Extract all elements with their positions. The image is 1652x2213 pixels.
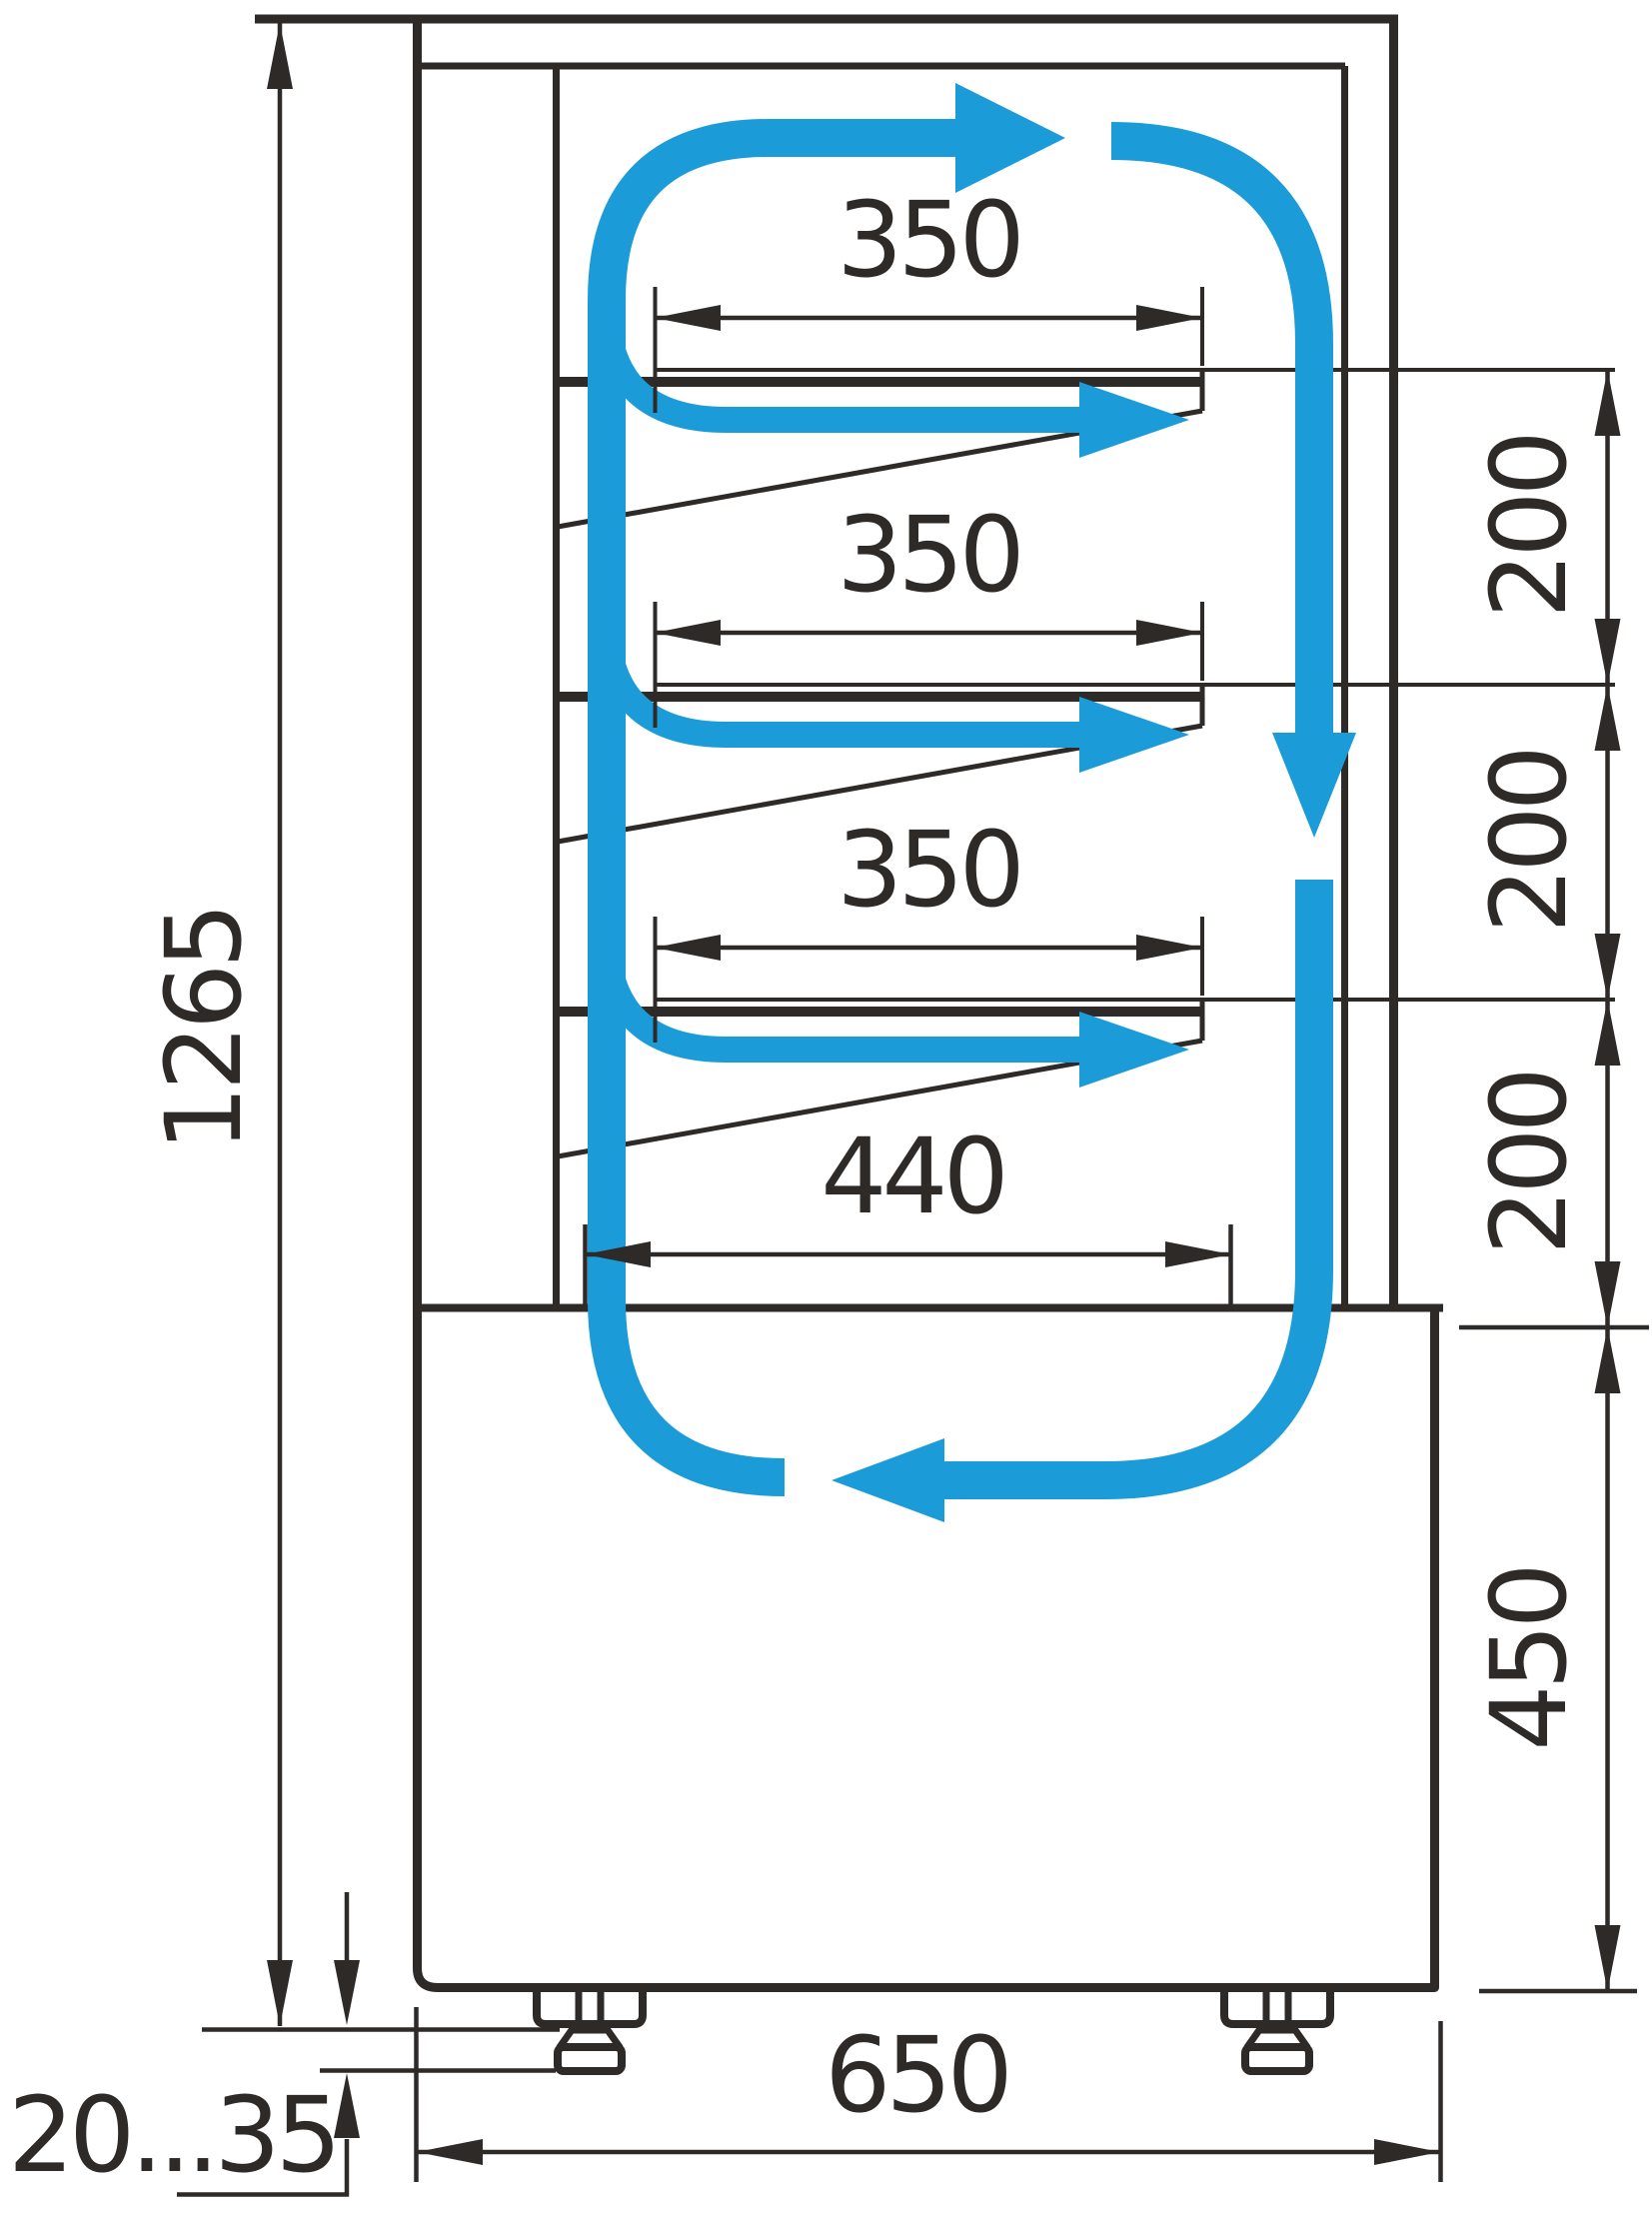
left-leg-foot-plate <box>558 2047 622 2071</box>
dim-shelf-2-width-label: 350 <box>836 494 1020 616</box>
dim-350-2-arrow-right-icon <box>1136 620 1202 646</box>
display-case-diagram: 1265 20...35 350 350 <box>0 0 1652 2213</box>
right-leg <box>1224 1992 1330 2071</box>
dim-overall-height-label: 1265 <box>143 908 265 1152</box>
dim-leg-adjust-label: 20...35 <box>8 2074 337 2196</box>
dim-350-1-arrow-left-icon <box>655 305 721 331</box>
chain-arrow-icon <box>1595 934 1621 1000</box>
left-leg-screw <box>579 1992 601 2024</box>
dim-well-height-label: 450 <box>1468 1567 1590 1751</box>
dim-350-1-arrow-right-icon <box>1136 305 1202 331</box>
chain-arrow-icon <box>1595 619 1621 685</box>
airflow-branch-2-arrow-icon <box>1079 697 1189 773</box>
dim-440-arrow-right-icon <box>1165 1241 1231 1267</box>
dim-shelf-3-width-label: 350 <box>836 809 1020 931</box>
airflow-branch-1-arrow-icon <box>1079 382 1189 458</box>
dim-1265-arrow-up-icon <box>267 23 293 89</box>
chain-arrow-icon <box>1595 1925 1621 1991</box>
dim-shelf-spacing-1-label: 200 <box>1468 435 1590 619</box>
chain-arrow-icon <box>1595 1327 1621 1393</box>
dim-1265-arrow-down-icon <box>267 1960 293 2026</box>
dim-350-2-arrow-left-icon <box>655 620 721 646</box>
right-leg-foot-plate <box>1245 2047 1309 2071</box>
dim-right-chain: 200 200 200 450 <box>1459 370 1649 1991</box>
airflow-branch-3-arrow-icon <box>1079 1012 1189 1088</box>
chain-arrow-icon <box>1595 1000 1621 1066</box>
airflow-left-arrow-icon <box>831 1438 944 1522</box>
dim-leg-arrow-up-icon <box>334 2073 360 2138</box>
dim-shelf-spacing-3-label: 200 <box>1468 1072 1590 1255</box>
cabinet-structure <box>255 19 1443 1988</box>
right-leg-bracket <box>1224 1992 1330 2024</box>
chain-arrow-icon <box>1595 370 1621 436</box>
airflow-main-left-path <box>607 138 955 1477</box>
cabinet-left-wall-and-bottom <box>418 19 1435 1988</box>
left-leg-bracket <box>537 1992 643 2024</box>
dim-bottom-shelf-width: 440 <box>585 1115 1231 1307</box>
dim-350-3-arrow-left-icon <box>655 935 721 961</box>
dim-650-arrow-left-icon <box>417 2139 483 2165</box>
dim-shelf-spacing-2-label: 200 <box>1468 750 1590 934</box>
dim-shelf-1-width-label: 350 <box>836 179 1020 301</box>
technical-drawing-page: 1265 20...35 350 350 <box>0 0 1652 2213</box>
dim-350-3-arrow-right-icon <box>1136 935 1202 961</box>
chain-arrow-icon <box>1595 685 1621 751</box>
dim-650-arrow-right-icon <box>1374 2139 1440 2165</box>
airflow-top-arrow-icon <box>955 83 1065 193</box>
dim-overall-depth-label: 650 <box>825 2014 1008 2136</box>
dim-leg-arrow-down-icon <box>334 1960 360 2025</box>
chain-arrow-icon <box>1595 1261 1621 1327</box>
right-leg-screw <box>1266 1992 1288 2024</box>
dim-overall-height: 1265 <box>143 23 560 2030</box>
dim-bottom-shelf-width-label: 440 <box>821 1115 1004 1237</box>
